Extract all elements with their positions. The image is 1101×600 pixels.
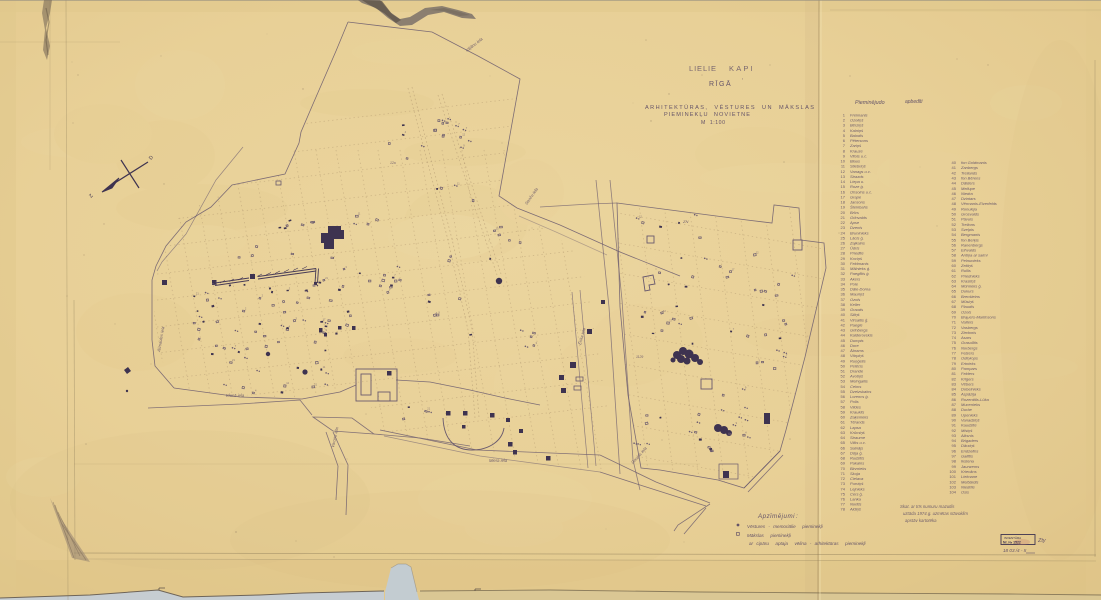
svg-text:Zty: Zty (1037, 538, 1047, 544)
svg-text:apstāv kartotēka: apstāv kartotēka (905, 518, 937, 523)
svg-text:12a: 12a (390, 161, 396, 165)
svg-text:Apzīmējumi :: Apzīmējumi : (757, 513, 798, 520)
svg-text:Osis: Osis (961, 490, 969, 495)
svg-text:Klusā iela: Klusā iela (226, 393, 245, 398)
svg-text:apbedīti: apbedīti (905, 99, 923, 105)
svg-text:RĪGĀ: RĪGĀ (709, 80, 732, 88)
svg-text:,: , (742, 75, 743, 81)
svg-text:Nr. № 1522: Nr. № 1522 (1003, 541, 1021, 545)
svg-text:uztāda 1974.g. uzmētas stāvokl: uztāda 1974.g. uzmētas stāvoklim (903, 511, 968, 516)
svg-text:ar cipāru aptaja vēlina - ar: ar cipāru aptaja vēlina - arhitektūras p… (749, 541, 867, 546)
svg-text:KAPI: KAPI (729, 64, 755, 73)
svg-text:Pieminējudo: Pieminējudo (855, 100, 885, 106)
svg-text:Vēstures - memoriālie piemine: Vēstures - memoriālie pieminekļi (747, 524, 824, 529)
svg-text:1129: 1129 (636, 355, 643, 359)
svg-text:Mākslas pieminekļi: Mākslas pieminekļi (747, 533, 792, 538)
svg-text:M 1:100: M 1:100 (701, 120, 725, 126)
svg-text:78: 78 (841, 507, 846, 512)
svg-text:Skat. ar trīs numuru mazutlis: Skat. ar trīs numuru mazutlis (900, 504, 955, 509)
svg-text:Miera iela: Miera iela (489, 458, 508, 463)
svg-text:Aldiņš: Aldiņš (849, 507, 861, 512)
svg-text:104: 104 (949, 490, 956, 495)
svg-text:INVENTĀRA: INVENTĀRA (1004, 536, 1021, 540)
svg-text:18 03 /4 - II: 18 03 /4 - II (1003, 548, 1027, 553)
svg-text:LIELIE: LIELIE (689, 64, 717, 73)
svg-text:PIEMINEKĻU NOVIETNE: PIEMINEKĻU NOVIETNE (664, 112, 750, 118)
svg-text:ZN: ZN (682, 219, 688, 224)
